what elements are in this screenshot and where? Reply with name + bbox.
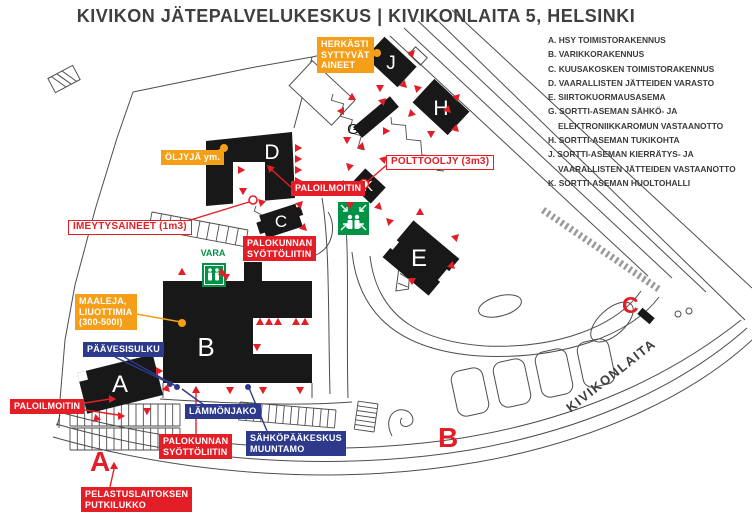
- label-rescue-dept-key-tube: PELASTUSLAITOKSEN PUTKILUKKO: [81, 487, 192, 512]
- route-marker-a: A: [90, 448, 110, 476]
- warning-triangle: [295, 198, 306, 209]
- parking-stall-line: [327, 409, 328, 427]
- label-heat-distribution: LÄMMÖNJAKO: [185, 404, 261, 419]
- label-flammable-materials: HERKÄSTI SYTTYVÄT AINEET: [317, 37, 374, 73]
- warning-triangle: [374, 202, 385, 213]
- label-paints-solvents: MAALEJA, LIUOTTIMIA (300-500l): [75, 294, 137, 330]
- legend-item-continuation: ELEKTRONIIKKAROMUN VASTAANOTTO: [548, 119, 736, 133]
- vara-sign-label: VARA: [197, 248, 229, 258]
- warning-triangle: [343, 160, 354, 171]
- legend-item: J. SORTTI-ASEMAN KIERRÄTYS- JA: [548, 147, 736, 161]
- warning-triangle: [143, 408, 151, 415]
- label-fuel-oil: POLTTOÖLJY (3m3): [386, 155, 494, 170]
- warning-triangle: [110, 462, 118, 469]
- warning-triangle: [411, 82, 422, 93]
- label-main-electric-center: SÄHKÖPÄÄKESKUS MUUNTAMO: [246, 431, 346, 456]
- parking-stall-line: [216, 225, 219, 242]
- warning-triangle: [226, 387, 234, 394]
- warning-triangle: [259, 387, 267, 394]
- parking-stall-line: [356, 415, 376, 418]
- parking-stall-line: [206, 223, 209, 240]
- letter-C: C: [275, 212, 287, 231]
- parking-stall-line: [290, 406, 291, 424]
- warning-triangle: [295, 166, 302, 174]
- warning-triangle: [383, 127, 390, 135]
- parking-stall-line: [312, 408, 313, 426]
- parking-stall-line: [298, 407, 299, 425]
- legend-item: C. KUUSAKOSKEN TOIMISTORAKENNUS: [548, 62, 736, 76]
- parking-stall-line: [305, 408, 306, 426]
- parking-stall-line: [355, 425, 375, 428]
- parking-stall-line: [268, 404, 269, 422]
- label-fire-alarm-bottom: PALOILMOITIN: [10, 399, 84, 414]
- building-legend: A. HSY TOIMISTORAKENNUS B. VARIKKORAKENN…: [548, 33, 736, 190]
- warning-triangle: [292, 318, 300, 325]
- label-absorbents: IMEYTYSAINEET (1m3): [68, 220, 192, 235]
- warning-triangle: [407, 47, 418, 58]
- legend-item: A. HSY TOIMISTORAKENNUS: [548, 33, 736, 47]
- letter-D: D: [264, 141, 279, 164]
- legend-item: E. SIIRTOKUORMAUSASEMA: [548, 90, 736, 104]
- letter-E: E: [411, 245, 427, 272]
- warning-triangle: [295, 155, 302, 163]
- parking-stall-line: [354, 429, 374, 432]
- legend-item: K. SORTTI-ASEMAN HUOLTOHALLI: [548, 176, 736, 190]
- letter-B: B: [197, 332, 214, 362]
- parking-stall-line: [356, 420, 376, 423]
- warning-triangle: [274, 318, 282, 325]
- warning-triangle: [376, 85, 384, 92]
- label-main-water-shutoff: PÄÄVESISULKU: [83, 342, 164, 357]
- parking-stall-line: [335, 410, 336, 428]
- route-marker-b: B: [438, 424, 458, 452]
- parking-stall-line: [358, 401, 378, 404]
- warning-triangle: [451, 231, 462, 242]
- parking-stall-line: [226, 226, 229, 243]
- route-marker-c: C: [622, 294, 639, 317]
- legend-item: H. SORTTI-ASEMAN TUKIKOHTA: [548, 133, 736, 147]
- warning-triangle: [383, 215, 394, 226]
- warning-triangle: [427, 131, 435, 138]
- parking-stall-line: [197, 221, 200, 238]
- warning-triangle: [265, 318, 273, 325]
- warning-triangle: [178, 268, 186, 275]
- letter-A: A: [112, 371, 128, 398]
- label-fire-alarm-top: PALOILMOITIN: [291, 181, 365, 196]
- legend-item-continuation: VAARALLISTEN JÄTTEIDEN VASTAANOTTO: [548, 162, 736, 176]
- warning-triangle: [156, 367, 163, 375]
- warning-triangle: [253, 344, 261, 351]
- label-fire-dept-feed-connector-c: PALOKUNNAN SYÖTTÖLIITIN: [243, 236, 316, 261]
- warning-triangle: [405, 109, 416, 120]
- site-plan: J H G D K C E B A: [0, 0, 752, 532]
- gate-block: [637, 308, 654, 324]
- label-fire-dept-feed-connector-bottom: PALOKUNNAN SYÖTTÖLIITIN: [159, 434, 232, 459]
- parking-stall-line: [357, 411, 377, 414]
- building-D: [206, 132, 295, 206]
- letter-J: J: [386, 53, 396, 74]
- parking-stall-line: [283, 406, 284, 424]
- legend-item: G. SORTTI-ASEMAN SÄHKÖ- JA: [548, 104, 736, 118]
- parking-stall-line: [320, 409, 321, 427]
- warning-triangle: [301, 318, 309, 325]
- parking-stall-line: [358, 406, 378, 409]
- label-oils: ÖLJYJÄ ym.: [161, 150, 224, 165]
- warning-triangle: [256, 318, 264, 325]
- warning-triangle: [416, 208, 424, 215]
- warning-triangle: [343, 137, 351, 144]
- legend-item: D. VAARALLISTEN JÄTTEIDEN VARASTO: [548, 76, 736, 90]
- parking-stall-line: [275, 405, 276, 423]
- warning-triangle: [192, 386, 200, 393]
- letter-G: G: [347, 121, 359, 138]
- warning-triangle: [296, 387, 304, 394]
- parking-stall-line: [235, 228, 238, 245]
- page-title: KIVIKON JÄTEPALVELUKESKUS | KIVIKONLAITA…: [0, 6, 712, 27]
- building-G: [353, 96, 399, 138]
- warning-triangle: [295, 144, 302, 152]
- legend-item: B. VARIKKORAKENNUS: [548, 47, 736, 61]
- assembly-point-sign: [338, 202, 369, 235]
